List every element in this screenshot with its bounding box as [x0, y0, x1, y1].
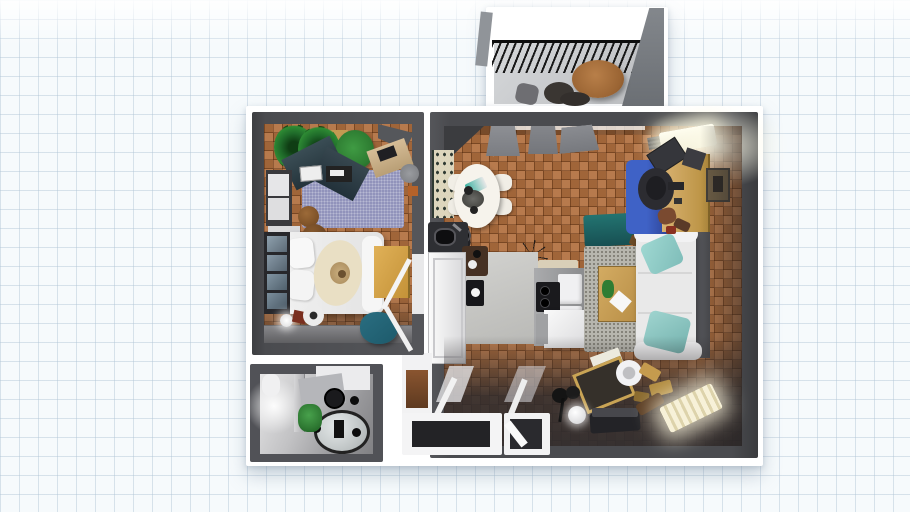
- table-plant: [602, 280, 614, 298]
- corner-stool[interactable]: [400, 164, 419, 183]
- printer-slot: [330, 170, 344, 176]
- entry-door-dark: [412, 421, 490, 447]
- cylinder-lamp[interactable]: [616, 360, 642, 386]
- kitchen-island[interactable]: [544, 310, 584, 348]
- curtain[interactable]: [528, 126, 558, 154]
- fridge-door-line: [433, 258, 463, 358]
- kitchen-sink: [434, 228, 456, 246]
- sofa-seam: [638, 272, 692, 274]
- upper-cabinet[interactable]: [558, 274, 582, 304]
- window-pane: [267, 255, 287, 271]
- window-pane: [267, 274, 287, 290]
- dresser-drawer: [268, 174, 289, 196]
- burner: [540, 298, 550, 308]
- round-mirror[interactable]: [324, 388, 345, 409]
- bathroom-plant[interactable]: [298, 404, 322, 432]
- art-moon: [471, 288, 480, 297]
- bed-pillow: [287, 237, 316, 270]
- balcony-railing[interactable]: [492, 40, 650, 73]
- office-chair-seat: [646, 176, 666, 200]
- coffee-cup: [468, 260, 477, 269]
- canvas-top-fade: [0, 0, 910, 46]
- blanket-knot: [338, 270, 346, 278]
- floor-plan-canvas: [0, 0, 910, 512]
- wall-art-inner: [713, 176, 723, 192]
- bed-pillow: [287, 269, 316, 302]
- hall-door-opening[interactable]: [406, 370, 428, 408]
- black-stool[interactable]: [352, 428, 361, 437]
- plate: [470, 206, 478, 214]
- window-pane: [267, 293, 287, 309]
- red-item: [666, 226, 676, 234]
- hall-bench-top: [592, 408, 638, 417]
- kettle: [473, 250, 481, 258]
- burner: [540, 286, 550, 296]
- curtain[interactable]: [486, 126, 520, 156]
- keyboard: [668, 182, 684, 190]
- table-pedestal: [334, 420, 344, 438]
- orange-box: [408, 186, 418, 196]
- curtain[interactable]: [557, 124, 599, 154]
- plate: [464, 186, 473, 195]
- stool[interactable]: [303, 305, 324, 326]
- dresser-drawer: [268, 198, 289, 220]
- window-pane: [267, 236, 287, 252]
- island-side: [536, 314, 548, 344]
- coat-stand-hat: [566, 386, 580, 399]
- toilet[interactable]: [262, 374, 280, 396]
- black-stool[interactable]: [350, 396, 359, 405]
- laptop-screen[interactable]: [299, 165, 322, 182]
- sphere-lamp[interactable]: [568, 406, 586, 424]
- bedroom-door-gap[interactable]: [412, 254, 424, 314]
- phone: [674, 198, 682, 204]
- balcony-chair-dark2[interactable]: [560, 92, 590, 106]
